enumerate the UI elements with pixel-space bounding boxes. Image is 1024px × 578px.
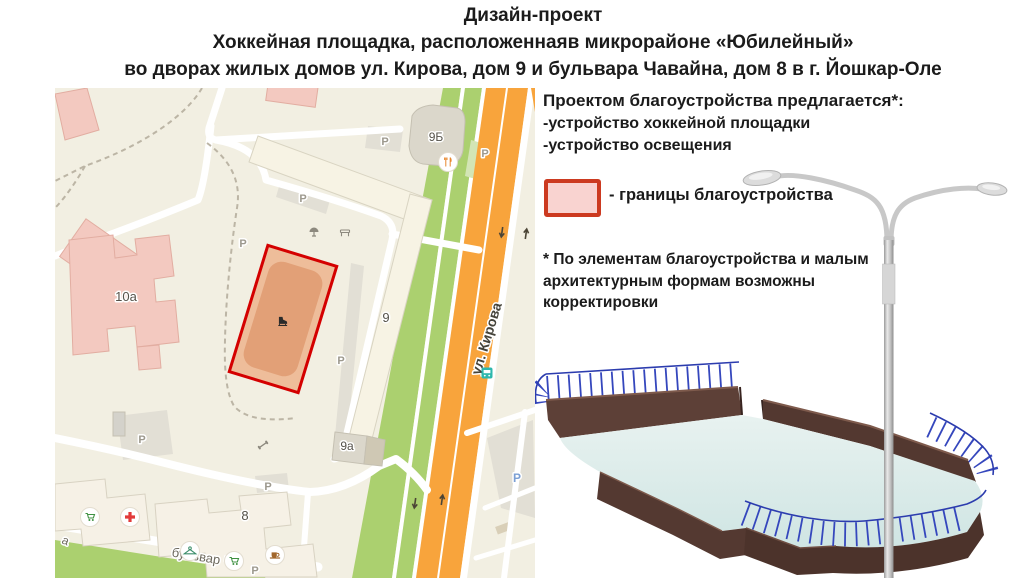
title-block: Дизайн-проект Хоккейная площадка, распол… [42, 2, 1024, 83]
svg-text:Р: Р [239, 238, 246, 250]
footnote: * По элементам благоустройства и малым а… [543, 249, 869, 314]
svg-text:Р: Р [264, 481, 271, 493]
title-line-3: во дворах жилых домов ул. Кирова, дом 9 … [42, 56, 1024, 83]
svg-text:Р: Р [381, 136, 388, 148]
svg-text:Р: Р [299, 193, 306, 205]
label-10a: 10а [115, 289, 137, 304]
svg-text:Р: Р [337, 355, 344, 367]
design-project-slide: Дизайн-проект Хоккейная площадка, распол… [0, 0, 1024, 578]
label-8: 8 [241, 508, 248, 523]
grocery-cart-icon [81, 508, 100, 527]
label-9: 9 [382, 310, 389, 325]
lamp-head-right [976, 181, 1007, 197]
restaurant-icon [439, 153, 458, 172]
lamp-arm-right [891, 188, 982, 242]
site-map: Р Р Р Р Р Р Р Р Р 9Б 10а 9 9а 8 ул. Киро… [55, 88, 535, 578]
lamp-head-left [742, 168, 782, 188]
title-line-1: Дизайн-проект [42, 2, 1024, 29]
clothing-hanger-icon [181, 542, 200, 561]
footnote-line-2: архитектурным формам возможны [543, 271, 869, 293]
boundary-legend-label: - границы благоустройства [609, 186, 833, 205]
svg-text:Р: Р [481, 148, 488, 160]
rink-render [535, 85, 1024, 578]
footnote-line-3: корректировки [543, 292, 869, 314]
label-9a: 9а [340, 439, 354, 453]
footnote-line-1: * По элементам благоустройства и малым [543, 249, 869, 271]
ice-surface [560, 415, 983, 548]
svg-text:Р: Р [513, 471, 521, 485]
svg-text:Р: Р [138, 434, 145, 446]
bus-stop-icon [482, 368, 493, 379]
proposal-item-lighting: -устройство освещения [543, 137, 732, 155]
grocery-cart-icon-2 [225, 552, 244, 571]
svg-text:Р: Р [251, 565, 258, 577]
label-9b: 9Б [429, 130, 444, 144]
boundary-legend-swatch [544, 179, 601, 217]
lamp-pole-sleeve [883, 264, 896, 304]
proposal-heading: Проектом благоустройства предлагается*: [543, 91, 904, 111]
pharmacy-cross-icon [121, 508, 140, 527]
proposal-item-rink: -устройство хоккейной площадки [543, 115, 810, 133]
title-line-2: Хоккейная площадка, расположеннаяв микро… [42, 29, 1024, 56]
cafe-cup-icon [266, 546, 285, 565]
